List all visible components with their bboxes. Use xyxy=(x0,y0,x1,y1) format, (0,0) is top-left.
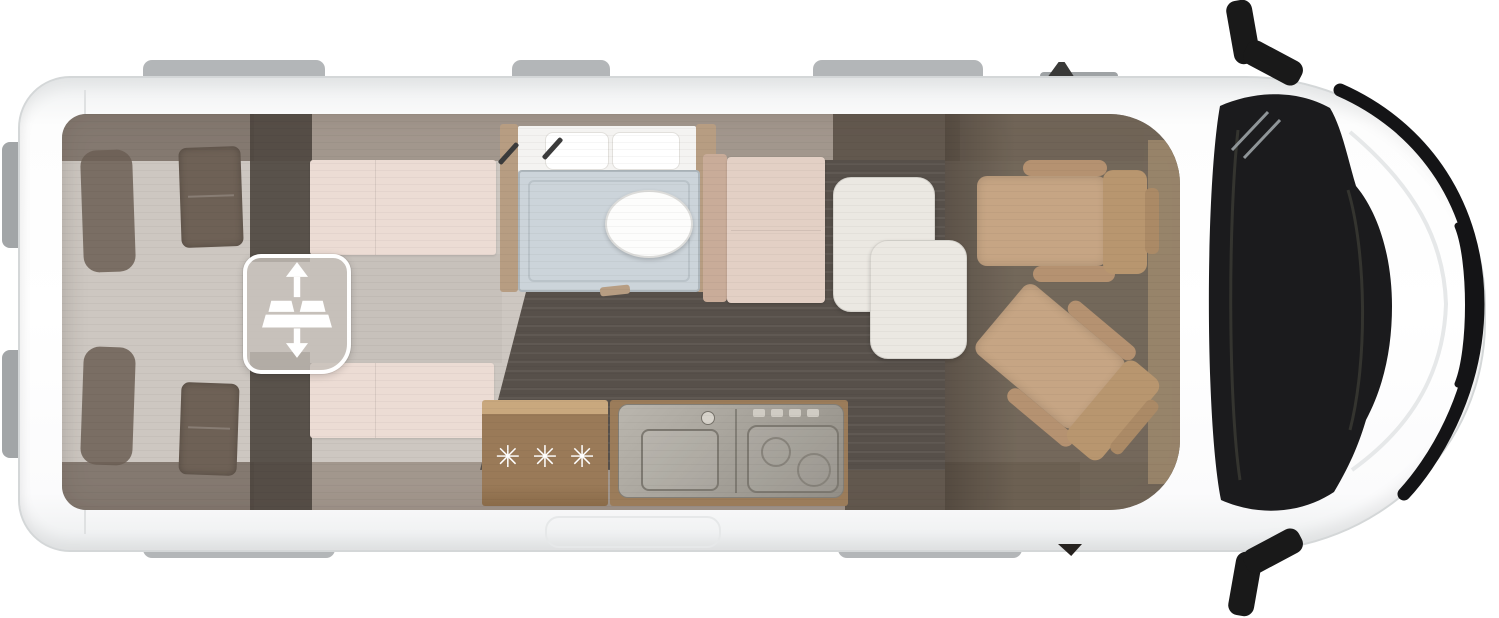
mattress-crease xyxy=(375,160,376,255)
bed-mattress-bottom xyxy=(310,363,494,438)
overhead-band-top-dinette xyxy=(833,114,960,161)
mattress-crease xyxy=(375,363,376,438)
bed-lift-icon[interactable] xyxy=(243,254,351,374)
pillow-fold xyxy=(188,426,230,429)
seat-headrest xyxy=(1145,188,1159,254)
kitchen-sink xyxy=(641,429,719,491)
stove-top xyxy=(747,425,839,493)
wardrobe-top xyxy=(250,114,312,262)
dinette-table-lower xyxy=(870,240,967,359)
sliding-door-outline xyxy=(545,516,721,548)
bench-crease xyxy=(731,230,821,231)
seat-backrest xyxy=(1103,170,1147,274)
antenna-icon xyxy=(1046,62,1076,76)
bed-lift-pillow-right xyxy=(300,301,326,312)
bed-lift-up-arrow xyxy=(286,262,308,277)
counter-divider xyxy=(735,409,737,493)
rear-backrest-cushion-bottom xyxy=(80,346,136,466)
bed-mattress-top xyxy=(310,160,496,255)
toilet-lid xyxy=(605,190,693,258)
fridge-cabinet: ✳✳✳ xyxy=(482,400,608,506)
bed-lift-mattress xyxy=(262,315,332,328)
seat-cushion xyxy=(977,176,1107,266)
burner-icon xyxy=(797,453,831,487)
camper-van-floorplan: ✳✳✳ xyxy=(0,0,1499,618)
rear-backrest-cushion-top xyxy=(80,149,136,273)
stove-knob xyxy=(753,409,765,417)
seat-armrest xyxy=(1023,160,1107,176)
stove-knob xyxy=(771,409,783,417)
kitchen-faucet-icon xyxy=(701,411,715,425)
interior-floorplan: ✳✳✳ xyxy=(62,114,1180,510)
cab-seat-driver xyxy=(975,158,1161,284)
bathroom-sink-right xyxy=(612,132,680,170)
stove-knob xyxy=(807,409,819,417)
bed-pillow-top xyxy=(178,146,243,248)
fridge-freezer-stars: ✳✳✳ xyxy=(482,436,608,480)
dinette-bench-seat xyxy=(727,157,825,303)
bed-lift-pillow-left xyxy=(268,301,294,312)
burner-icon xyxy=(761,437,791,467)
pillow-fold xyxy=(188,194,234,198)
bed-lift-down-arrow xyxy=(286,343,308,358)
dinette-bench-backrest xyxy=(703,154,727,302)
bathroom-sink-left xyxy=(545,132,609,170)
stove-knob xyxy=(789,409,801,417)
kitchen-counter xyxy=(618,404,844,498)
bed-pillow-bottom xyxy=(178,382,239,476)
wardrobe-bottom xyxy=(250,352,312,510)
